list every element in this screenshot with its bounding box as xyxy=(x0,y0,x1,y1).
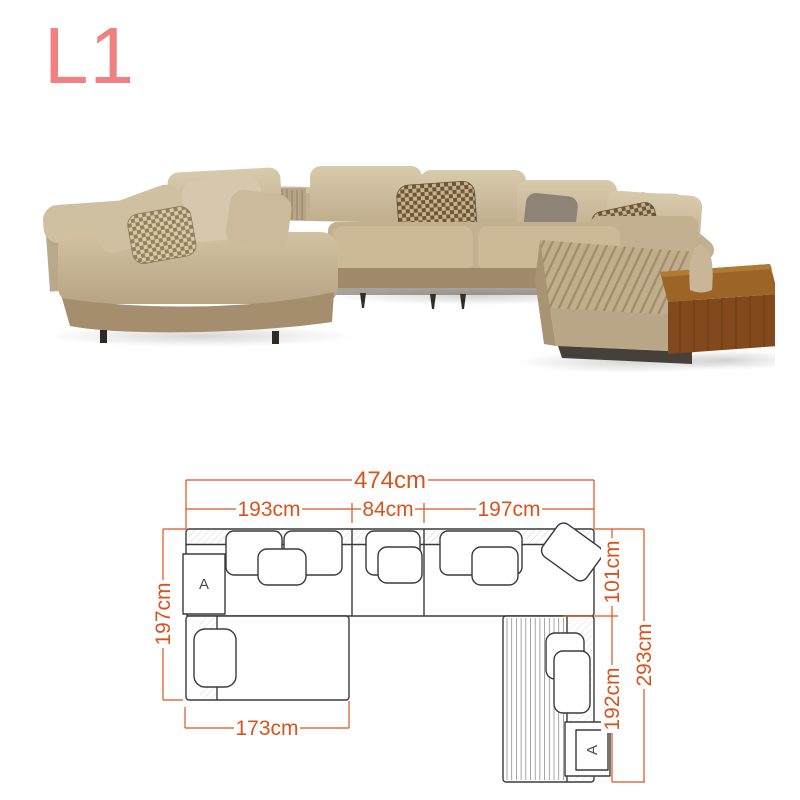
dim-right-total: 293cm xyxy=(633,623,656,686)
side-table xyxy=(660,264,775,354)
dim-middle-section: 84cm xyxy=(362,498,413,521)
dim-right-upper: 101cm xyxy=(601,540,624,603)
sofa-top-view xyxy=(183,520,610,782)
left-chaise xyxy=(58,232,338,344)
dim-left-section: 193cm xyxy=(237,498,300,521)
sofa-product-photo xyxy=(30,140,775,385)
dim-left-chaise: 173cm xyxy=(235,717,298,740)
dim-right-section: 197cm xyxy=(477,498,540,521)
armrest-marker-right: A xyxy=(584,745,601,755)
dim-total-width: 474cm xyxy=(354,467,426,494)
dimension-diagram: A A 474cm 193cm 84cm 197cm xyxy=(150,455,720,800)
variant-label: L1 xyxy=(44,16,135,96)
dim-left-depth: 197cm xyxy=(152,582,175,645)
armrest-marker-left: A xyxy=(199,576,209,593)
dim-right-lower: 192cm xyxy=(601,667,624,730)
